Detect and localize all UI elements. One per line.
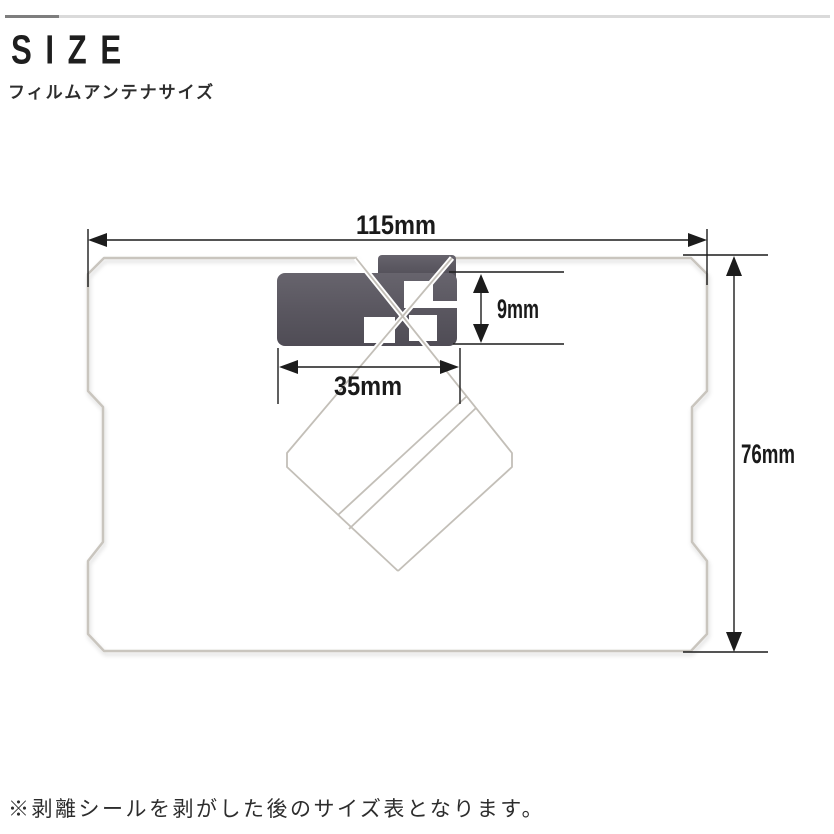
footnote-text: ※剥離シールを剥がした後のサイズ表となります。	[8, 793, 545, 823]
label-film-width: 115mm	[356, 210, 436, 240]
trace-band-line-1	[338, 396, 467, 515]
page: SIZE フィルムアンテナサイズ	[0, 0, 834, 834]
dimension-feed-height: 9mm	[449, 272, 564, 344]
trace-band-line-2	[349, 408, 476, 529]
dimension-film-height: 76mm	[683, 255, 795, 652]
label-film-height: 76mm	[741, 439, 795, 469]
label-feed-width: 35mm	[334, 371, 402, 401]
label-feed-height: 9mm	[497, 294, 539, 324]
film-antenna-size-diagram: 115mm 9mm 35mm 76mm	[0, 0, 834, 834]
